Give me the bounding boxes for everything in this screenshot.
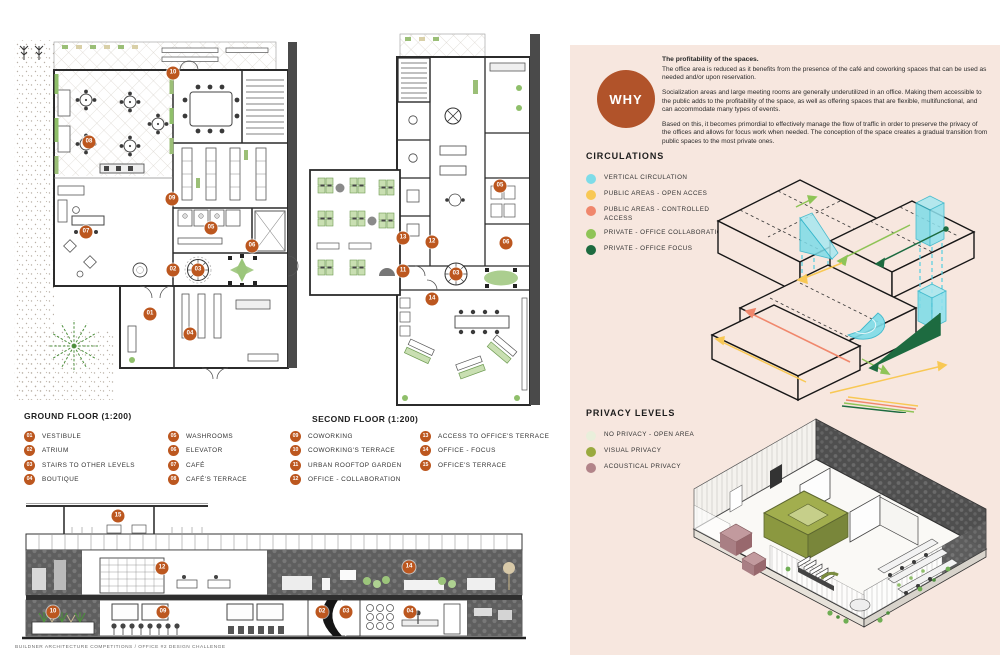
circulation-color-dot	[586, 245, 596, 255]
legend-number-badge: 01	[24, 431, 35, 442]
plan-marker-badge: 04	[404, 606, 417, 619]
plan-marker-badge: 05	[205, 222, 218, 235]
legend-item-label: WASHROOMS	[186, 433, 233, 440]
legend-item: 10COWORKING'S TERRACE	[290, 446, 402, 456]
circulation-axonometric-diagram	[710, 163, 980, 413]
intro-paragraph: Based on this, it becomes primordial to …	[662, 121, 988, 147]
legend-item: 12OFFICE - COLLABORATION	[290, 475, 402, 485]
legend-item-label: BOUTIQUE	[42, 476, 79, 483]
legend-number-badge: 13	[420, 431, 431, 442]
footer-credit: BUILDNER ARCHITECTURE COMPETITIONS / OFF…	[15, 645, 226, 650]
plan-marker-badge: 15	[112, 510, 125, 523]
privacy-color-dot	[586, 431, 596, 441]
legend-item-label: COWORKING'S TERRACE	[308, 447, 395, 454]
legend-item-label: ACCESS TO OFFICE'S TERRACE	[438, 433, 549, 440]
legend-item-label: ELEVATOR	[186, 447, 223, 454]
ground-floor-title: GROUND FLOOR (1:200)	[24, 411, 132, 421]
plan-marker-badge: 13	[397, 232, 410, 245]
legend-number-badge: 09	[290, 431, 301, 442]
legend-number-badge: 02	[24, 445, 35, 456]
legend-item: 06ELEVATOR	[168, 446, 247, 456]
plan-marker-badge: 05	[494, 180, 507, 193]
legend-item: 02ATRIUM	[24, 446, 135, 456]
second-floor-plan-drawing: 05 13 12 06 11 03 14	[305, 28, 555, 413]
legend-item-label: URBAN ROOFTOP GARDEN	[308, 462, 402, 469]
legend-number-badge: 12	[290, 474, 301, 485]
privacy-axonometric-diagram	[680, 417, 998, 653]
building-section-drawing: 15 12 14 10 09 02 03 04	[12, 498, 532, 643]
plan-marker-badge: 03	[450, 268, 463, 281]
plan-marker-badge: 02	[167, 264, 180, 277]
legend-item-label: OFFICE'S TERRACE	[438, 462, 506, 469]
legend-number-badge: 07	[168, 460, 179, 471]
privacy-color-dot	[586, 463, 596, 473]
circulation-color-dot	[586, 190, 596, 200]
ground-floor-plan-drawing: 10 08 09 07 05 06 02 03 01 04	[12, 38, 300, 403]
plan-marker-badge: 10	[167, 67, 180, 80]
legend-item-label: VESTIBULE	[42, 433, 81, 440]
legend-item-label: OFFICE - COLLABORATION	[308, 476, 401, 483]
legend-entry-label: VISUAL PRIVACY	[604, 447, 661, 456]
plan-marker-badge: 07	[80, 226, 93, 239]
intro-paragraph: The office area is reduced as it benefit…	[662, 66, 988, 83]
legend-number-badge: 10	[290, 445, 301, 456]
legend-number-badge: 14	[420, 445, 431, 456]
legend-item: 01VESTIBULE	[24, 431, 135, 441]
legend-item: 05WASHROOMS	[168, 431, 247, 441]
plan-marker-badge: 01	[144, 308, 157, 321]
legend-number-badge: 04	[24, 474, 35, 485]
why-circle: WHY	[597, 70, 655, 128]
plan-marker-badge: 04	[184, 328, 197, 341]
circulation-color-dot	[586, 206, 596, 216]
legend-item: 07CAFÉ	[168, 460, 247, 470]
legend-entry-label: VERTICAL CIRCULATION	[604, 174, 687, 183]
legend-entry-label: PRIVATE - OFFICE FOCUS	[604, 245, 692, 254]
plan-marker-badge: 12	[426, 236, 439, 249]
legend-item-label: CAFÉ	[186, 462, 205, 469]
legend-column-4: 13ACCESS TO OFFICE'S TERRACE 14OFFICE - …	[420, 431, 549, 470]
legend-number-badge: 15	[420, 460, 431, 471]
plan-marker-badge: 09	[157, 606, 170, 619]
plan-marker-badge: 02	[316, 606, 329, 619]
legend-entry-label: PUBLIC AREAS - OPEN ACCES	[604, 190, 707, 199]
privacy-heading: PRIVACY LEVELS	[586, 408, 675, 418]
plan-marker-badge: 03	[340, 606, 353, 619]
plan-marker-badge: 10	[47, 606, 60, 619]
privacy-color-dot	[586, 447, 596, 457]
legend-entry-label: PRIVATE - OFFICE COLLABORATION	[604, 229, 727, 238]
legend-number-badge: 08	[168, 474, 179, 485]
legend-item-label: STAIRS TO OTHER LEVELS	[42, 462, 135, 469]
legend-number-badge: 05	[168, 431, 179, 442]
plan-marker-badge: 09	[166, 193, 179, 206]
poster-canvas: 10 08 09 07 05 06 02 03 01 04	[0, 0, 1000, 664]
plan-marker-badge: 08	[83, 136, 96, 149]
intro-paragraph: Socialization areas and large meeting ro…	[662, 89, 988, 115]
legend-item: 08CAFÉ'S TERRACE	[168, 475, 247, 485]
legend-item-label: CAFÉ'S TERRACE	[186, 476, 247, 483]
plan-marker-badge: 06	[500, 237, 513, 250]
legend-entry-label: ACOUSTICAL PRIVACY	[604, 463, 681, 472]
plan-marker-badge: 11	[397, 265, 410, 278]
legend-item-label: COWORKING	[308, 433, 353, 440]
legend-item: 14OFFICE - FOCUS	[420, 446, 549, 456]
legend-number-badge: 06	[168, 445, 179, 456]
legend-item-label: OFFICE - FOCUS	[438, 447, 496, 454]
right-panel: WHY The profitability of the spaces. The…	[570, 45, 1000, 655]
legend-number-badge: 03	[24, 460, 35, 471]
legend-column-2: 05WASHROOMS 06ELEVATOR 07CAFÉ 08CAFÉ'S T…	[168, 431, 247, 485]
legend-column-1: 01VESTIBULE 02ATRIUM 03STAIRS TO OTHER L…	[24, 431, 135, 485]
legend-item-label: ATRIUM	[42, 447, 69, 454]
legend-item: 03STAIRS TO OTHER LEVELS	[24, 460, 135, 470]
circulation-color-dot	[586, 174, 596, 184]
legend-column-3: 09COWORKING 10COWORKING'S TERRACE 11URBA…	[290, 431, 402, 485]
legend-number-badge: 11	[290, 460, 301, 471]
plan-marker-badge: 12	[156, 562, 169, 575]
legend-item: 13ACCESS TO OFFICE'S TERRACE	[420, 431, 549, 441]
second-floor-title: SECOND FLOOR (1:200)	[312, 414, 418, 424]
plan-marker-badge: 14	[426, 293, 439, 306]
plan-marker-badge: 03	[192, 264, 205, 277]
circulations-heading: CIRCULATIONS	[586, 151, 664, 161]
legend-item: 04BOUTIQUE	[24, 475, 135, 485]
legend-item: 15OFFICE'S TERRACE	[420, 460, 549, 470]
plan-marker-badge: 06	[246, 240, 259, 253]
legend-item: 11URBAN ROOFTOP GARDEN	[290, 460, 402, 470]
intro-heading: The profitability of the spaces.	[662, 56, 988, 65]
legend-item: 09COWORKING	[290, 431, 402, 441]
plan-marker-badge: 14	[403, 561, 416, 574]
intro-text: The profitability of the spaces. The off…	[662, 56, 988, 152]
circulation-color-dot	[586, 229, 596, 239]
